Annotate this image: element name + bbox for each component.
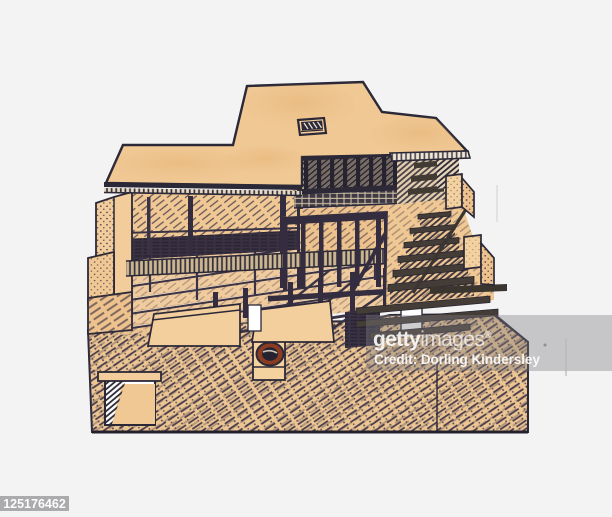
svg-text:Credit: Dorling Kindersley: Credit: Dorling Kindersley: [374, 352, 540, 367]
svg-text:gettyimages®: gettyimages®: [373, 328, 492, 351]
svg-text:125176462: 125176462: [3, 497, 66, 511]
